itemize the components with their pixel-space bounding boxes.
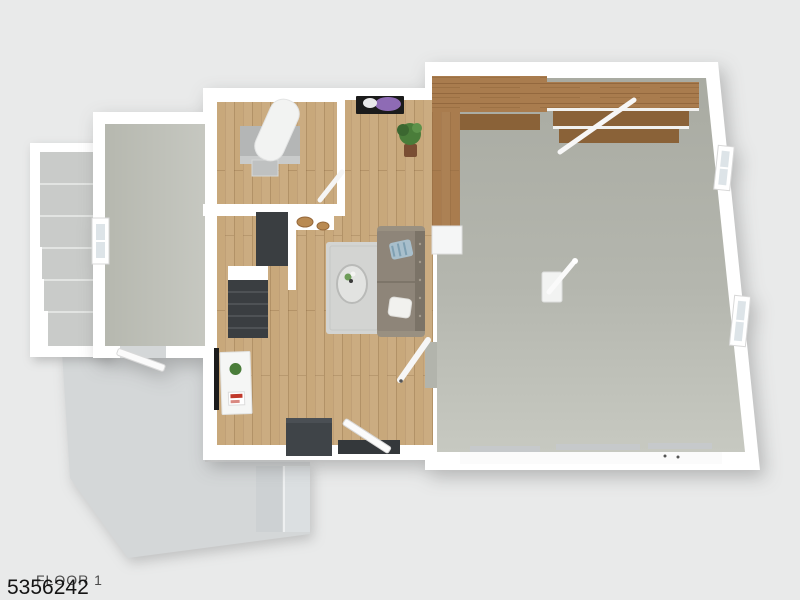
basket	[297, 217, 313, 227]
garage-door-opening	[425, 342, 437, 388]
entry-step-upper	[284, 466, 310, 532]
sofa	[377, 226, 425, 337]
window-mullion	[736, 321, 744, 322]
exterior-step	[40, 152, 96, 183]
exterior-step	[40, 184, 100, 215]
purple-flowers	[375, 97, 401, 111]
tv-console	[356, 96, 404, 114]
door-handle	[399, 379, 403, 383]
shelf-grain	[547, 82, 699, 108]
plant-pot	[404, 144, 417, 157]
desk-book-red-light	[231, 400, 240, 403]
floorplan-page: FLOOR 1 5356242	[0, 0, 800, 600]
plant-foliage-light	[412, 123, 422, 133]
room-utility	[217, 95, 347, 214]
desk-book	[228, 392, 244, 406]
shelf-grain	[432, 76, 547, 112]
window-sill	[648, 443, 712, 449]
stairs-divider-wall	[288, 212, 296, 290]
sill-hardware	[664, 455, 667, 458]
bottom-window-band	[460, 452, 722, 464]
living-floor-upper-planks	[345, 100, 433, 214]
ottoman-top-edge	[286, 418, 332, 423]
sill-hardware	[677, 456, 680, 459]
plant-foliage-dark	[397, 124, 409, 136]
ottoman-chest	[286, 418, 332, 456]
wall-tv	[214, 348, 219, 410]
window-sill	[470, 446, 540, 452]
table-vase	[349, 279, 353, 283]
white-cabinet	[432, 226, 462, 254]
post-pole-tip	[572, 258, 578, 264]
stairs-lower-flight	[228, 280, 268, 338]
table-flowers-white	[351, 272, 356, 277]
utility-cabinet	[252, 160, 278, 176]
listing-id: 5356242	[7, 576, 89, 600]
stairs-landing	[228, 266, 268, 280]
room-garage	[432, 76, 751, 464]
floorplan-canvas	[0, 0, 800, 600]
desk	[220, 351, 252, 414]
coffee-table	[337, 265, 367, 303]
window-mullion	[720, 168, 728, 169]
garage-bottom-windows	[460, 443, 722, 464]
room-basement	[92, 124, 205, 372]
glass-table-top	[337, 265, 367, 303]
console-vase	[363, 98, 377, 108]
basket	[317, 222, 329, 230]
wood-rack-shelf-2	[553, 111, 689, 126]
basement-floor-sheen	[105, 124, 205, 346]
wood-shelf-under	[460, 114, 540, 130]
basement-window	[92, 218, 109, 264]
stairs-upper-flight	[256, 212, 288, 266]
window-sill	[556, 444, 640, 450]
desk-book-red	[230, 394, 242, 398]
pillow-white	[388, 297, 412, 319]
entry-step-lower	[256, 466, 282, 532]
